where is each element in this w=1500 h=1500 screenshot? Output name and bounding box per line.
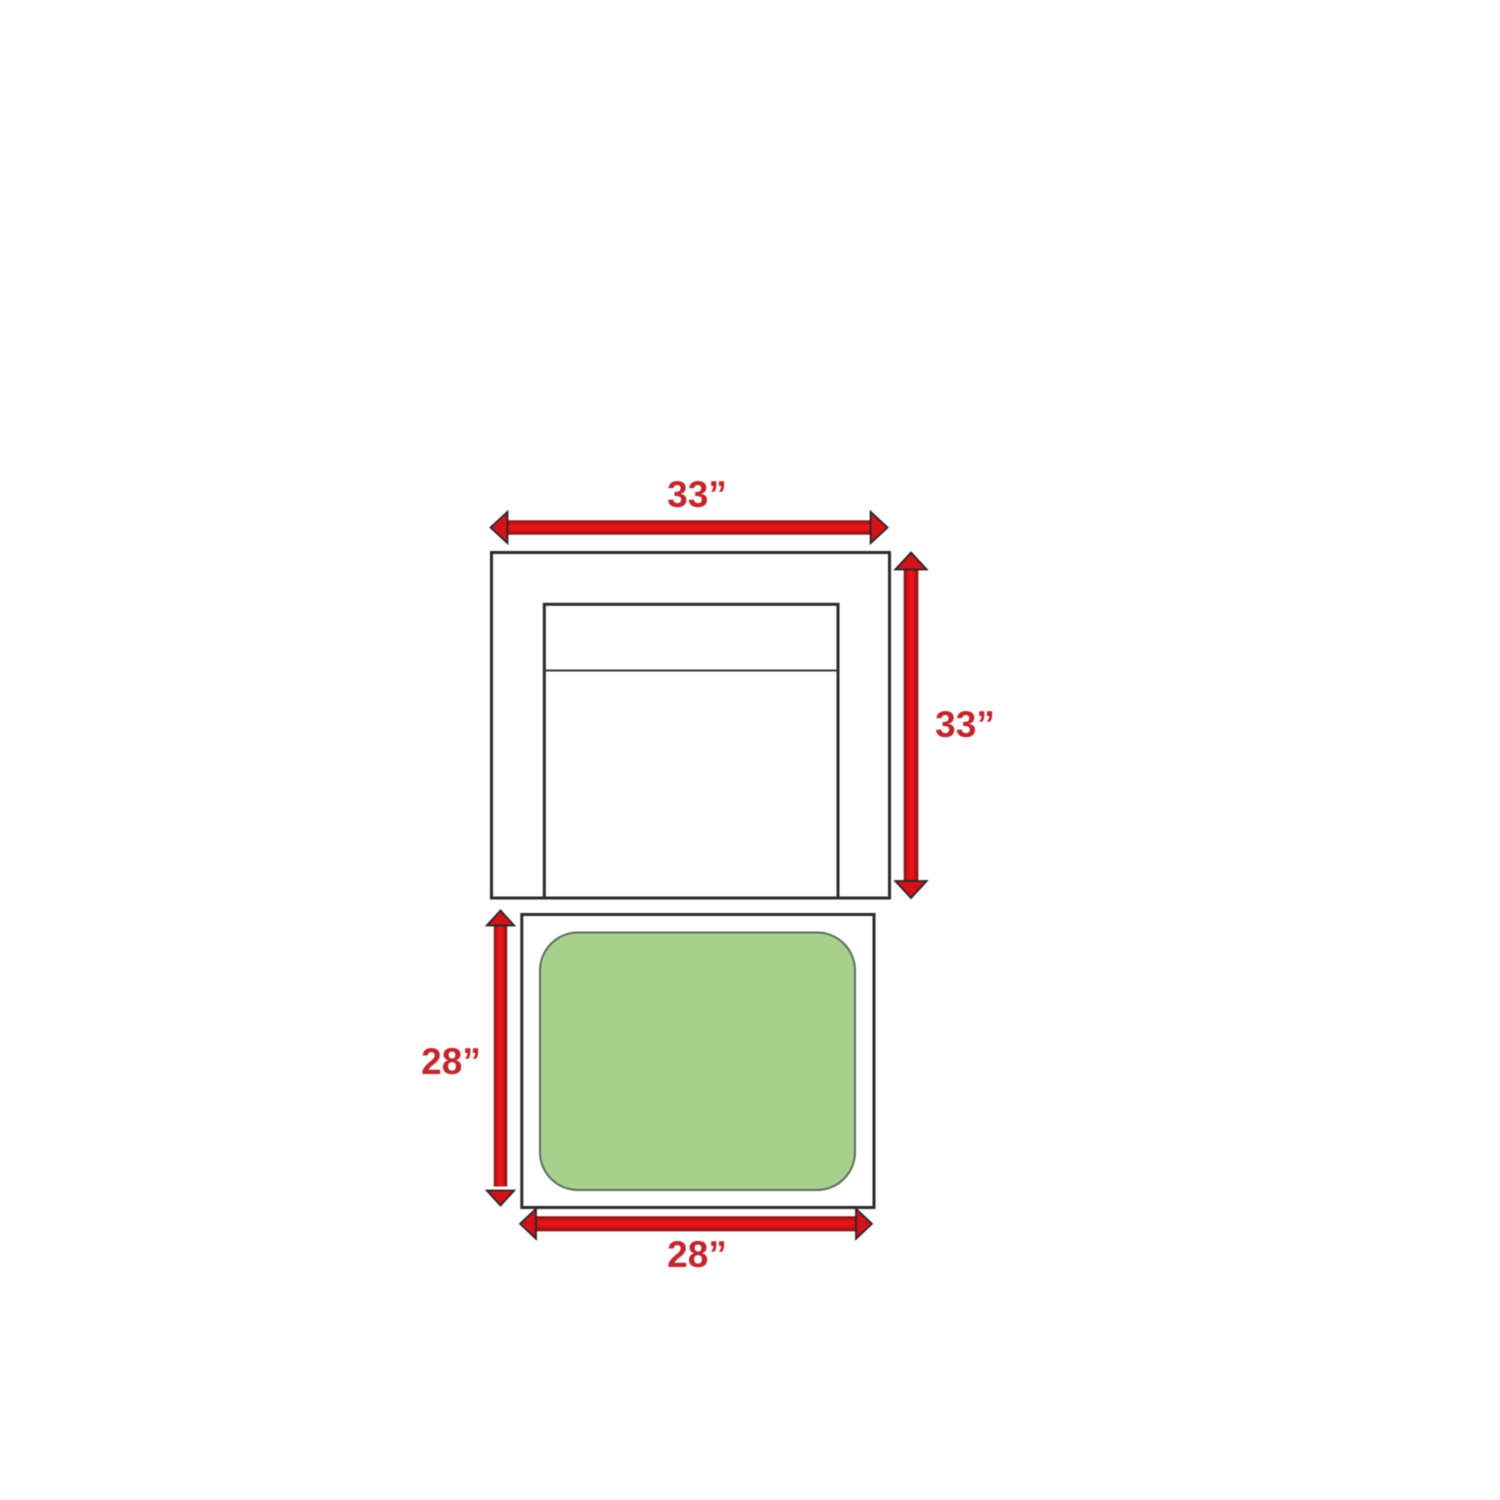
svg-text:33”: 33” bbox=[935, 704, 995, 745]
svg-text:28”: 28” bbox=[667, 1234, 727, 1275]
svg-text:33”: 33” bbox=[667, 474, 727, 515]
svg-text:28”: 28” bbox=[421, 1041, 481, 1082]
